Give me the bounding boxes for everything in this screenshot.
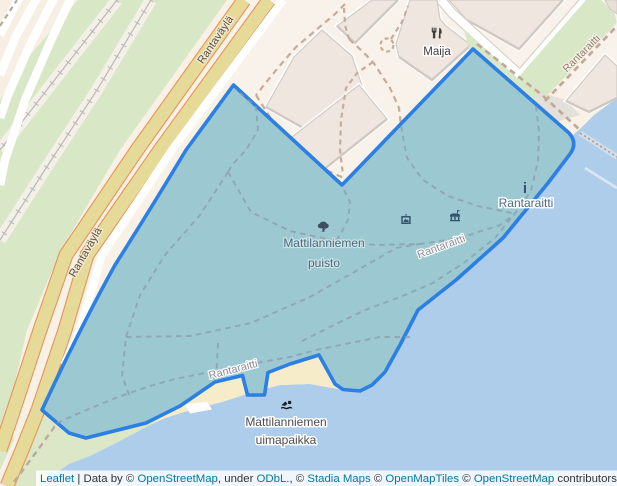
svg-text:Mattilanniemen: Mattilanniemen <box>245 415 326 429</box>
svg-text:uimapaikka: uimapaikka <box>256 433 317 447</box>
svg-text:i: i <box>523 180 527 197</box>
svg-text:Leaflet | Data by © OpenStreet: Leaflet | Data by © OpenStreetMap, under… <box>40 473 617 485</box>
svg-text:Maija: Maija <box>423 46 451 58</box>
svg-text:Rantaraitti: Rantaraitti <box>499 196 554 210</box>
svg-text:puisto: puisto <box>308 256 340 270</box>
svg-text:Mattilanniemen: Mattilanniemen <box>283 236 364 250</box>
